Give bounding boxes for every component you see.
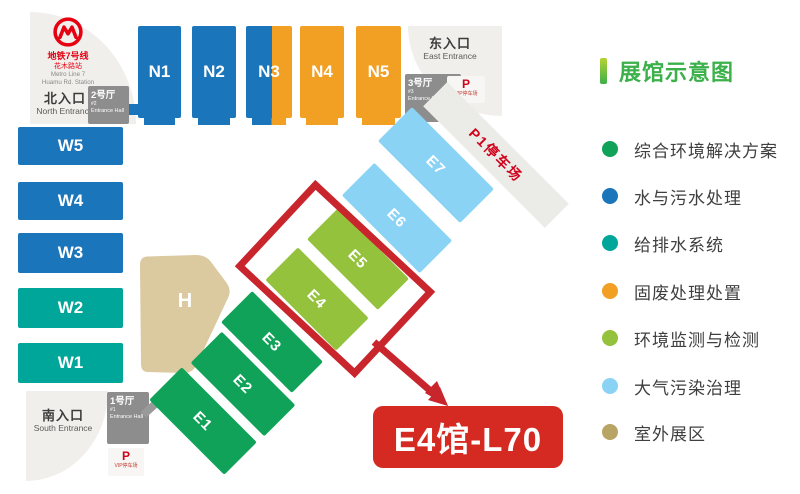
east-entrance-en: East Entrance	[412, 51, 488, 62]
east-entrance-zh: 东入口	[412, 36, 488, 51]
south-entrance-en: South Entrance	[20, 423, 106, 434]
south-entrance-zh: 南入口	[20, 408, 106, 423]
metro-info: 地铁7号线 花木路站 Metro Line 7 Huamu Rd. Statio…	[30, 16, 106, 87]
hall-w2: W2	[18, 288, 123, 328]
vip-parking-bottom-label: VIP停车场	[108, 463, 144, 470]
hall-w4: W4	[18, 182, 123, 220]
exhibition-map: 地铁7号线 花木路站 Metro Line 7 Huamu Rd. Statio…	[0, 0, 800, 494]
legend-dot-icon	[602, 424, 618, 440]
hall-n5: N5	[356, 26, 401, 118]
hall-w1: W1	[18, 343, 123, 383]
hall-h: H	[170, 290, 200, 313]
shanghai-metro-icon	[52, 16, 84, 48]
hall-n3: N3	[246, 26, 292, 118]
legend-item-water: 水与污水处理	[602, 185, 742, 207]
legend-label: 大气污染治理	[634, 374, 742, 399]
hall-label: E3	[259, 329, 285, 355]
hall-label: N5	[368, 62, 390, 82]
south-entrance-label: 南入口 South Entrance	[20, 408, 106, 434]
legend-label: 综合环境解决方案	[634, 137, 778, 162]
hall-n1: N1	[138, 26, 181, 118]
hall-label: W3	[58, 243, 84, 263]
hall-label: E2	[230, 371, 256, 397]
entrance-hall-2-en: Entrance Hall	[91, 108, 126, 115]
entrance-hall-1-en: Entrance Hall	[110, 414, 146, 421]
parking-p-icon: P	[108, 450, 144, 463]
hall-n4: N4	[300, 26, 344, 118]
hall-label: E6	[384, 205, 410, 231]
legend-dot-icon	[602, 188, 618, 204]
connector-hall2-n1	[129, 104, 138, 115]
hall-label: W4	[58, 191, 84, 211]
hall-label: N1	[149, 62, 171, 82]
legend-label: 水与污水处理	[634, 184, 742, 209]
legend-dot-icon	[602, 330, 618, 346]
booth-callout: E4馆-L70	[373, 406, 563, 468]
entrance-hall-2-name: 2号厅	[91, 90, 126, 101]
hall-label: W2	[58, 298, 84, 318]
legend-label: 室外展区	[634, 420, 706, 445]
legend-label: 给排水系统	[634, 231, 724, 256]
legend-item-outdoor: 室外展区	[602, 421, 706, 443]
hall-label: N3	[258, 62, 280, 82]
entrance-hall-2: 2号厅 #2 Entrance Hall	[88, 86, 129, 124]
legend-title-bar-icon	[600, 58, 607, 84]
hall-w3: W3	[18, 233, 123, 273]
entrance-hall-2-number: #2	[91, 101, 126, 108]
legend-item-drainage: 给排水系统	[602, 232, 724, 254]
hall-label: E1	[190, 408, 216, 434]
legend-item-air: 大气污染治理	[602, 375, 742, 397]
hall-label: N4	[311, 62, 333, 82]
vip-parking-bottom: P VIP停车场	[108, 448, 144, 476]
legend-title-text: 展馆示意图	[619, 55, 734, 87]
hall-label: E7	[423, 152, 449, 178]
hall-label: W5	[58, 136, 84, 156]
hall-label: N2	[203, 62, 225, 82]
hall-label: W1	[58, 353, 84, 373]
legend-item-comprehensive: 综合环境解决方案	[602, 138, 778, 160]
legend-dot-icon	[602, 283, 618, 299]
legend-title: 展馆示意图	[600, 55, 734, 87]
metro-station-zh: 花木路站	[30, 62, 106, 71]
booth-callout-text: E4馆-L70	[394, 413, 542, 461]
hall-w5: W5	[18, 127, 123, 165]
south-entrance-plaza	[26, 391, 108, 481]
legend-dot-icon	[602, 378, 618, 394]
legend-dot-icon	[602, 235, 618, 251]
legend-label: 环境监测与检测	[634, 326, 760, 351]
metro-line-zh: 地铁7号线	[30, 51, 106, 62]
entrance-hall-1-name: 1号厅	[110, 396, 146, 407]
legend-dot-icon	[602, 141, 618, 157]
metro-line-en: Metro Line 7	[32, 71, 104, 79]
legend-item-solid-waste: 固废处理处置	[602, 280, 742, 302]
hall-n2: N2	[192, 26, 236, 118]
legend-item-monitoring: 环境监测与检测	[602, 327, 760, 349]
legend-label: 固废处理处置	[634, 279, 742, 304]
east-entrance-label: 东入口 East Entrance	[412, 36, 488, 62]
entrance-hall-1: 1号厅 #1 Entrance Hall	[107, 392, 149, 444]
